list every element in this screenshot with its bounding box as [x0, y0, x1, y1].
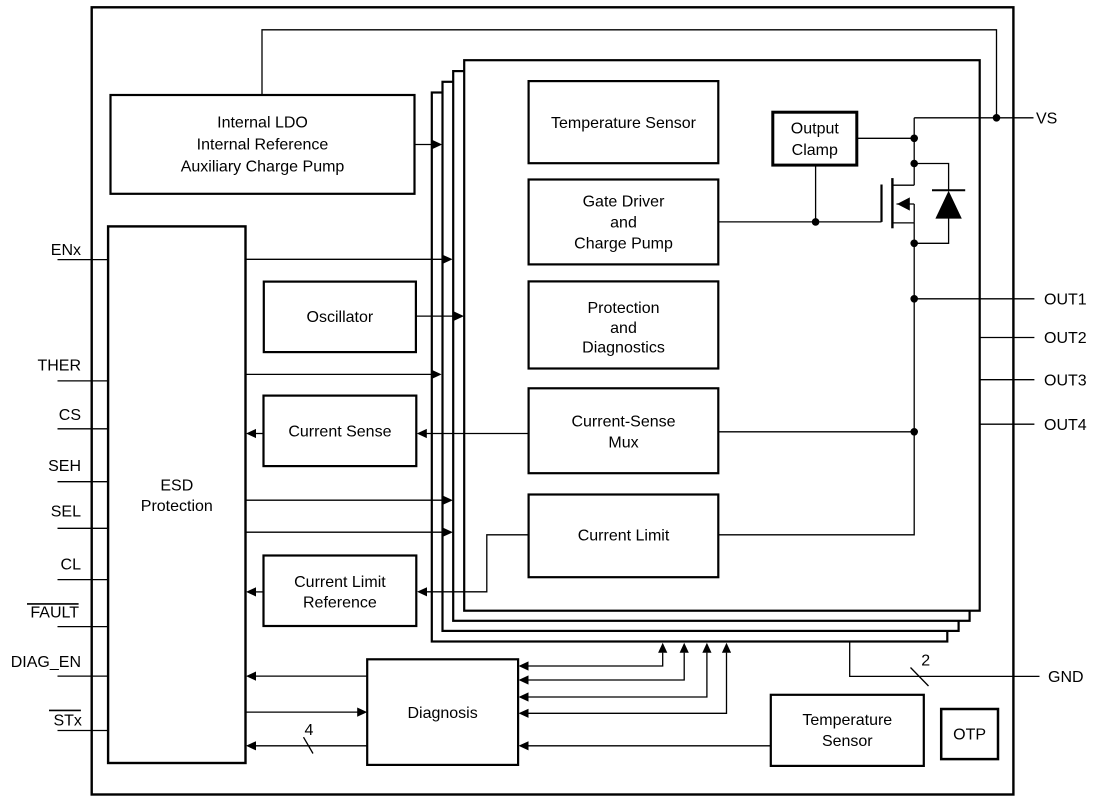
svg-text:4: 4 — [305, 722, 314, 739]
svg-text:Internal LDO: Internal LDO — [217, 115, 308, 132]
svg-text:and: and — [610, 215, 637, 232]
svg-text:Current Sense: Current Sense — [288, 424, 391, 441]
svg-text:Auxiliary Charge Pump: Auxiliary Charge Pump — [181, 158, 345, 175]
svg-text:Diagnostics: Diagnostics — [582, 340, 665, 357]
svg-text:Sensor: Sensor — [822, 733, 873, 750]
svg-text:GND: GND — [1048, 669, 1084, 686]
svg-text:STx: STx — [53, 713, 81, 730]
svg-text:Internal Reference: Internal Reference — [197, 137, 329, 154]
svg-text:Protection: Protection — [587, 300, 659, 317]
svg-text:Oscillator: Oscillator — [307, 309, 374, 326]
svg-text:OUT3: OUT3 — [1044, 372, 1087, 389]
svg-text:Clamp: Clamp — [792, 142, 838, 159]
svg-text:Protection: Protection — [141, 498, 213, 515]
svg-text:Diagnosis: Diagnosis — [407, 705, 477, 722]
svg-text:FAULT: FAULT — [30, 605, 79, 622]
svg-text:OUT4: OUT4 — [1044, 417, 1087, 434]
svg-text:Output: Output — [791, 120, 840, 137]
svg-text:OTP: OTP — [953, 727, 986, 744]
svg-text:Current Limit: Current Limit — [294, 574, 386, 591]
svg-text:Temperature: Temperature — [802, 712, 892, 729]
svg-text:Reference: Reference — [303, 595, 377, 612]
svg-text:ENx: ENx — [51, 242, 81, 259]
svg-text:VS: VS — [1036, 111, 1057, 128]
svg-text:SEL: SEL — [51, 504, 81, 521]
svg-text:CS: CS — [59, 407, 81, 424]
svg-text:Gate Driver: Gate Driver — [583, 194, 665, 211]
svg-text:Temperature Sensor: Temperature Sensor — [551, 115, 697, 132]
svg-text:CL: CL — [61, 557, 82, 574]
svg-text:Current-Sense: Current-Sense — [571, 414, 675, 431]
svg-text:ESD: ESD — [160, 478, 193, 495]
svg-text:Current Limit: Current Limit — [578, 528, 670, 545]
svg-text:DIAG_EN: DIAG_EN — [11, 654, 81, 671]
svg-text:OUT2: OUT2 — [1044, 330, 1087, 347]
svg-text:and: and — [610, 320, 637, 337]
svg-text:SEH: SEH — [48, 458, 81, 475]
svg-text:Charge Pump: Charge Pump — [574, 236, 673, 253]
svg-text:2: 2 — [921, 652, 930, 669]
svg-text:Mux: Mux — [608, 435, 638, 452]
svg-text:THER: THER — [37, 358, 81, 375]
svg-text:OUT1: OUT1 — [1044, 292, 1087, 309]
